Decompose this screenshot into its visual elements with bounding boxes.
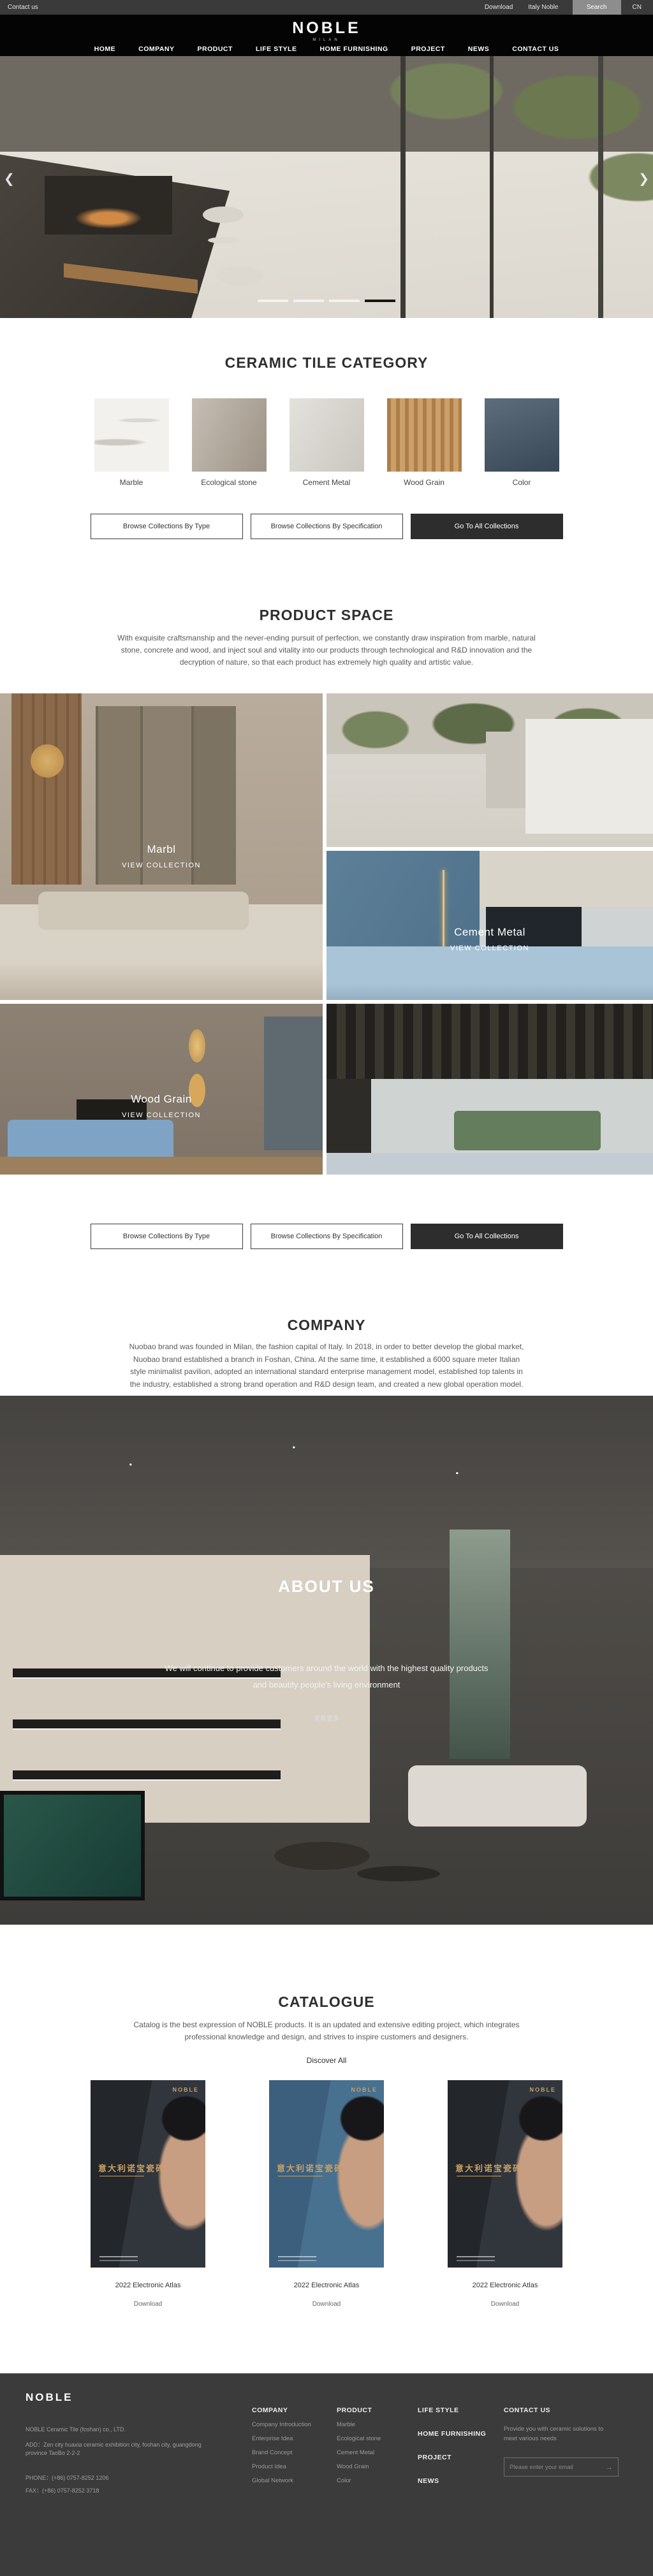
about-view-more-link[interactable]: 查看更多 [0, 1713, 653, 1723]
collection-image-patio[interactable] [326, 693, 653, 847]
cover-title-cn: 意大利诺宝瓷砖 [277, 2162, 344, 2174]
site-header: NOBLE MILAN HOME COMPANY PRODUCT LIFE ST… [0, 15, 653, 56]
tile-swatch-cement-metal[interactable] [290, 398, 364, 472]
footer-heading-contact-us[interactable]: CONTACT US [504, 2406, 550, 2414]
footer-company-name: NOBLE Ceramic Tile (foshan) co., LTD. [26, 2426, 217, 2434]
newsletter-email-input[interactable] [504, 2464, 600, 2471]
footer-link-life-style[interactable]: LIFE STYLE [418, 2406, 486, 2414]
carousel-indicator[interactable] [258, 300, 288, 302]
footer-column-product: PRODUCT Marble Ecological stone Cement M… [337, 2406, 381, 2484]
footer-heading-product[interactable]: PRODUCT [337, 2406, 381, 2414]
catalogue-download-link[interactable]: Download [448, 2301, 562, 2308]
nav-item-home-furnishing[interactable]: HOME FURNISHING [319, 45, 388, 53]
tile-swatch-row [0, 398, 653, 472]
collection-label: Cement Metal [326, 926, 653, 939]
company-paragraph: Nuobao brand was founded in Milan, the f… [125, 1341, 528, 1391]
cover-title-cn: 意大利诺宝瓷砖 [455, 2162, 522, 2174]
footer-link[interactable]: Brand Concept [252, 2449, 311, 2456]
tile-label: Ecological stone [192, 478, 267, 487]
footer-link[interactable]: Cement Metal [337, 2449, 381, 2456]
footer-column-company: COMPANY Company Introduction Enterprise … [252, 2406, 311, 2484]
footer-link[interactable]: Color [337, 2477, 381, 2484]
discover-all-link[interactable]: Discover All [0, 2056, 653, 2065]
catalogue-label: 2022 Electronic Atlas [448, 2282, 562, 2289]
page: Contact us Download Italy Noble Search C… [0, 0, 653, 2576]
cover-brand: NOBLE [530, 2087, 557, 2093]
download-link[interactable]: Download [485, 4, 513, 11]
catalogue-cover-3[interactable]: NOBLE 意大利诺宝瓷砖 [448, 2080, 562, 2268]
footer-link[interactable]: Wood Grain [337, 2463, 381, 2470]
product-space-buttons: Browse Collections By Type Browse Collec… [0, 1224, 653, 1249]
carousel-indicators [0, 300, 653, 302]
nav-item-home[interactable]: HOME [94, 45, 116, 53]
collection-image-cement-metal[interactable]: Cement Metal VIEW COLLECTION [326, 851, 653, 1000]
footer-fax: FAX：(+86) 0757-8252 3718 [26, 2487, 217, 2495]
nav-item-life-style[interactable]: LIFE STYLE [256, 45, 297, 53]
tile-swatch-wood-grain[interactable] [387, 398, 462, 472]
catalogue-label: 2022 Electronic Atlas [91, 2282, 205, 2289]
search-button[interactable]: Search [573, 0, 621, 15]
carousel-indicator-active[interactable] [365, 300, 395, 302]
hero-carousel-image [0, 56, 653, 318]
view-collection-link[interactable]: VIEW COLLECTION [0, 862, 323, 869]
about-us-line1: We will continue to provide customers ar… [0, 1663, 653, 1673]
catalogue-cover-2[interactable]: NOBLE 意大利诺宝瓷砖 [269, 2080, 384, 2268]
tile-label: Marble [94, 478, 169, 487]
carousel-indicator[interactable] [329, 300, 360, 302]
catalogue-section-title: CATALOGUE [0, 1994, 653, 2011]
nav-item-project[interactable]: PROJECT [411, 45, 445, 53]
language-toggle[interactable]: CN [633, 4, 642, 11]
product-space-title: PRODUCT SPACE [0, 607, 653, 624]
tile-label: Cement Metal [290, 478, 364, 487]
catalogue-cover-1[interactable]: NOBLE 意大利诺宝瓷砖 [91, 2080, 205, 2268]
carousel-prev-icon[interactable]: ❮ [4, 171, 15, 187]
carousel-next-icon[interactable]: ❯ [638, 171, 649, 187]
product-space-paragraph: With exquisite craftsmanship and the nev… [112, 632, 541, 669]
contact-us-link[interactable]: Contact us [8, 4, 38, 11]
newsletter-field-wrap: → [504, 2457, 619, 2477]
collection-image-wood-grain[interactable]: Wood Grain VIEW COLLECTION [0, 1004, 323, 1175]
collection-image-marble[interactable]: Marbl VIEW COLLECTION [0, 693, 323, 1000]
main-nav: HOME COMPANY PRODUCT LIFE STYLE HOME FUR… [0, 45, 653, 53]
browse-by-type-button[interactable]: Browse Collections By Type [91, 514, 243, 539]
category-buttons: Browse Collections By Type Browse Collec… [0, 514, 653, 539]
carousel-indicator[interactable] [293, 300, 324, 302]
browse-by-specification-button[interactable]: Browse Collections By Specification [251, 514, 403, 539]
catalogue-download-link[interactable]: Download [91, 2301, 205, 2308]
tile-label: Wood Grain [387, 478, 462, 487]
footer-link[interactable]: Enterprise Idea [252, 2435, 311, 2442]
all-collections-button[interactable]: Go To All Collections [411, 514, 563, 539]
all-collections-button[interactable]: Go To All Collections [411, 1224, 563, 1249]
footer-address: ADD：Zen city huaxia ceramic exhibition c… [26, 2441, 217, 2457]
footer-link-project[interactable]: PROJECT [418, 2454, 486, 2461]
catalogue-paragraph: Catalog is the best expression of NOBLE … [132, 2019, 521, 2043]
cover-title-cn: 意大利诺宝瓷砖 [98, 2162, 165, 2174]
footer-heading-company[interactable]: COMPANY [252, 2406, 311, 2414]
topbar-right-group: Download Italy Noble Search CN [477, 0, 653, 15]
italy-noble-link[interactable]: Italy Noble [528, 4, 558, 11]
footer-link[interactable]: Marble [337, 2421, 381, 2428]
about-us-image: ABOUT US We will continue to provide cus… [0, 1396, 653, 1925]
catalogue-download-link[interactable]: Download [269, 2301, 384, 2308]
brand-logo[interactable]: NOBLE [0, 19, 653, 38]
footer-contact: CONTACT US [504, 2406, 550, 2414]
footer-contact-desc: Provide you with ceramic solutions to me… [504, 2424, 612, 2443]
about-us-line2: and beautify people's living environment [0, 1680, 653, 1690]
browse-by-specification-button[interactable]: Browse Collections By Specification [251, 1224, 403, 1249]
tile-swatch-color[interactable] [485, 398, 559, 472]
tile-swatch-marble[interactable] [94, 398, 169, 472]
view-collection-link[interactable]: VIEW COLLECTION [326, 944, 653, 952]
brand-logo-sub: MILAN [0, 38, 653, 42]
tile-swatch-ecological-stone[interactable] [192, 398, 267, 472]
footer-link-home-furnishing[interactable]: HOME FURNISHING [418, 2430, 486, 2438]
view-collection-link[interactable]: VIEW COLLECTION [0, 1111, 323, 1119]
collection-label: Wood Grain [0, 1093, 323, 1106]
footer-phone: PHONE：(+86) 0757-8252 1206 [26, 2474, 217, 2482]
footer-link[interactable]: Global Network [252, 2477, 311, 2484]
cover-brand: NOBLE [173, 2087, 200, 2093]
tile-label: Color [485, 478, 559, 487]
category-section-title: CERAMIC TILE CATEGORY [0, 354, 653, 372]
nav-item-news[interactable]: NEWS [468, 45, 490, 53]
catalogue-label: 2022 Electronic Atlas [269, 2282, 384, 2289]
nav-item-product[interactable]: PRODUCT [198, 45, 233, 53]
footer-link[interactable]: Ecological stone [337, 2435, 381, 2442]
footer-link-news[interactable]: NEWS [418, 2477, 486, 2485]
newsletter-submit-icon[interactable]: → [600, 2463, 618, 2471]
top-bar: Contact us Download Italy Noble Search C… [0, 0, 653, 15]
company-section-title: COMPANY [0, 1317, 653, 1334]
collection-image-dark-room[interactable] [326, 1004, 653, 1175]
footer-link[interactable]: Company Introduction [252, 2421, 311, 2428]
browse-by-type-button[interactable]: Browse Collections By Type [91, 1224, 243, 1249]
cover-brand: NOBLE [351, 2087, 378, 2093]
footer-logo: NOBLE [26, 2391, 73, 2404]
nav-item-contact-us[interactable]: CONTACT US [512, 45, 559, 53]
site-footer: NOBLE NOBLE Ceramic Tile (foshan) co., L… [0, 2373, 653, 2576]
about-us-title: ABOUT US [0, 1577, 653, 1596]
footer-link[interactable]: Product Idea [252, 2463, 311, 2470]
nav-item-company[interactable]: COMPANY [138, 45, 174, 53]
tile-swatch-labels: Marble Ecological stone Cement Metal Woo… [0, 478, 653, 487]
footer-column-links: LIFE STYLE HOME FURNISHING PROJECT NEWS [418, 2406, 486, 2485]
collection-label: Marbl [0, 843, 323, 856]
